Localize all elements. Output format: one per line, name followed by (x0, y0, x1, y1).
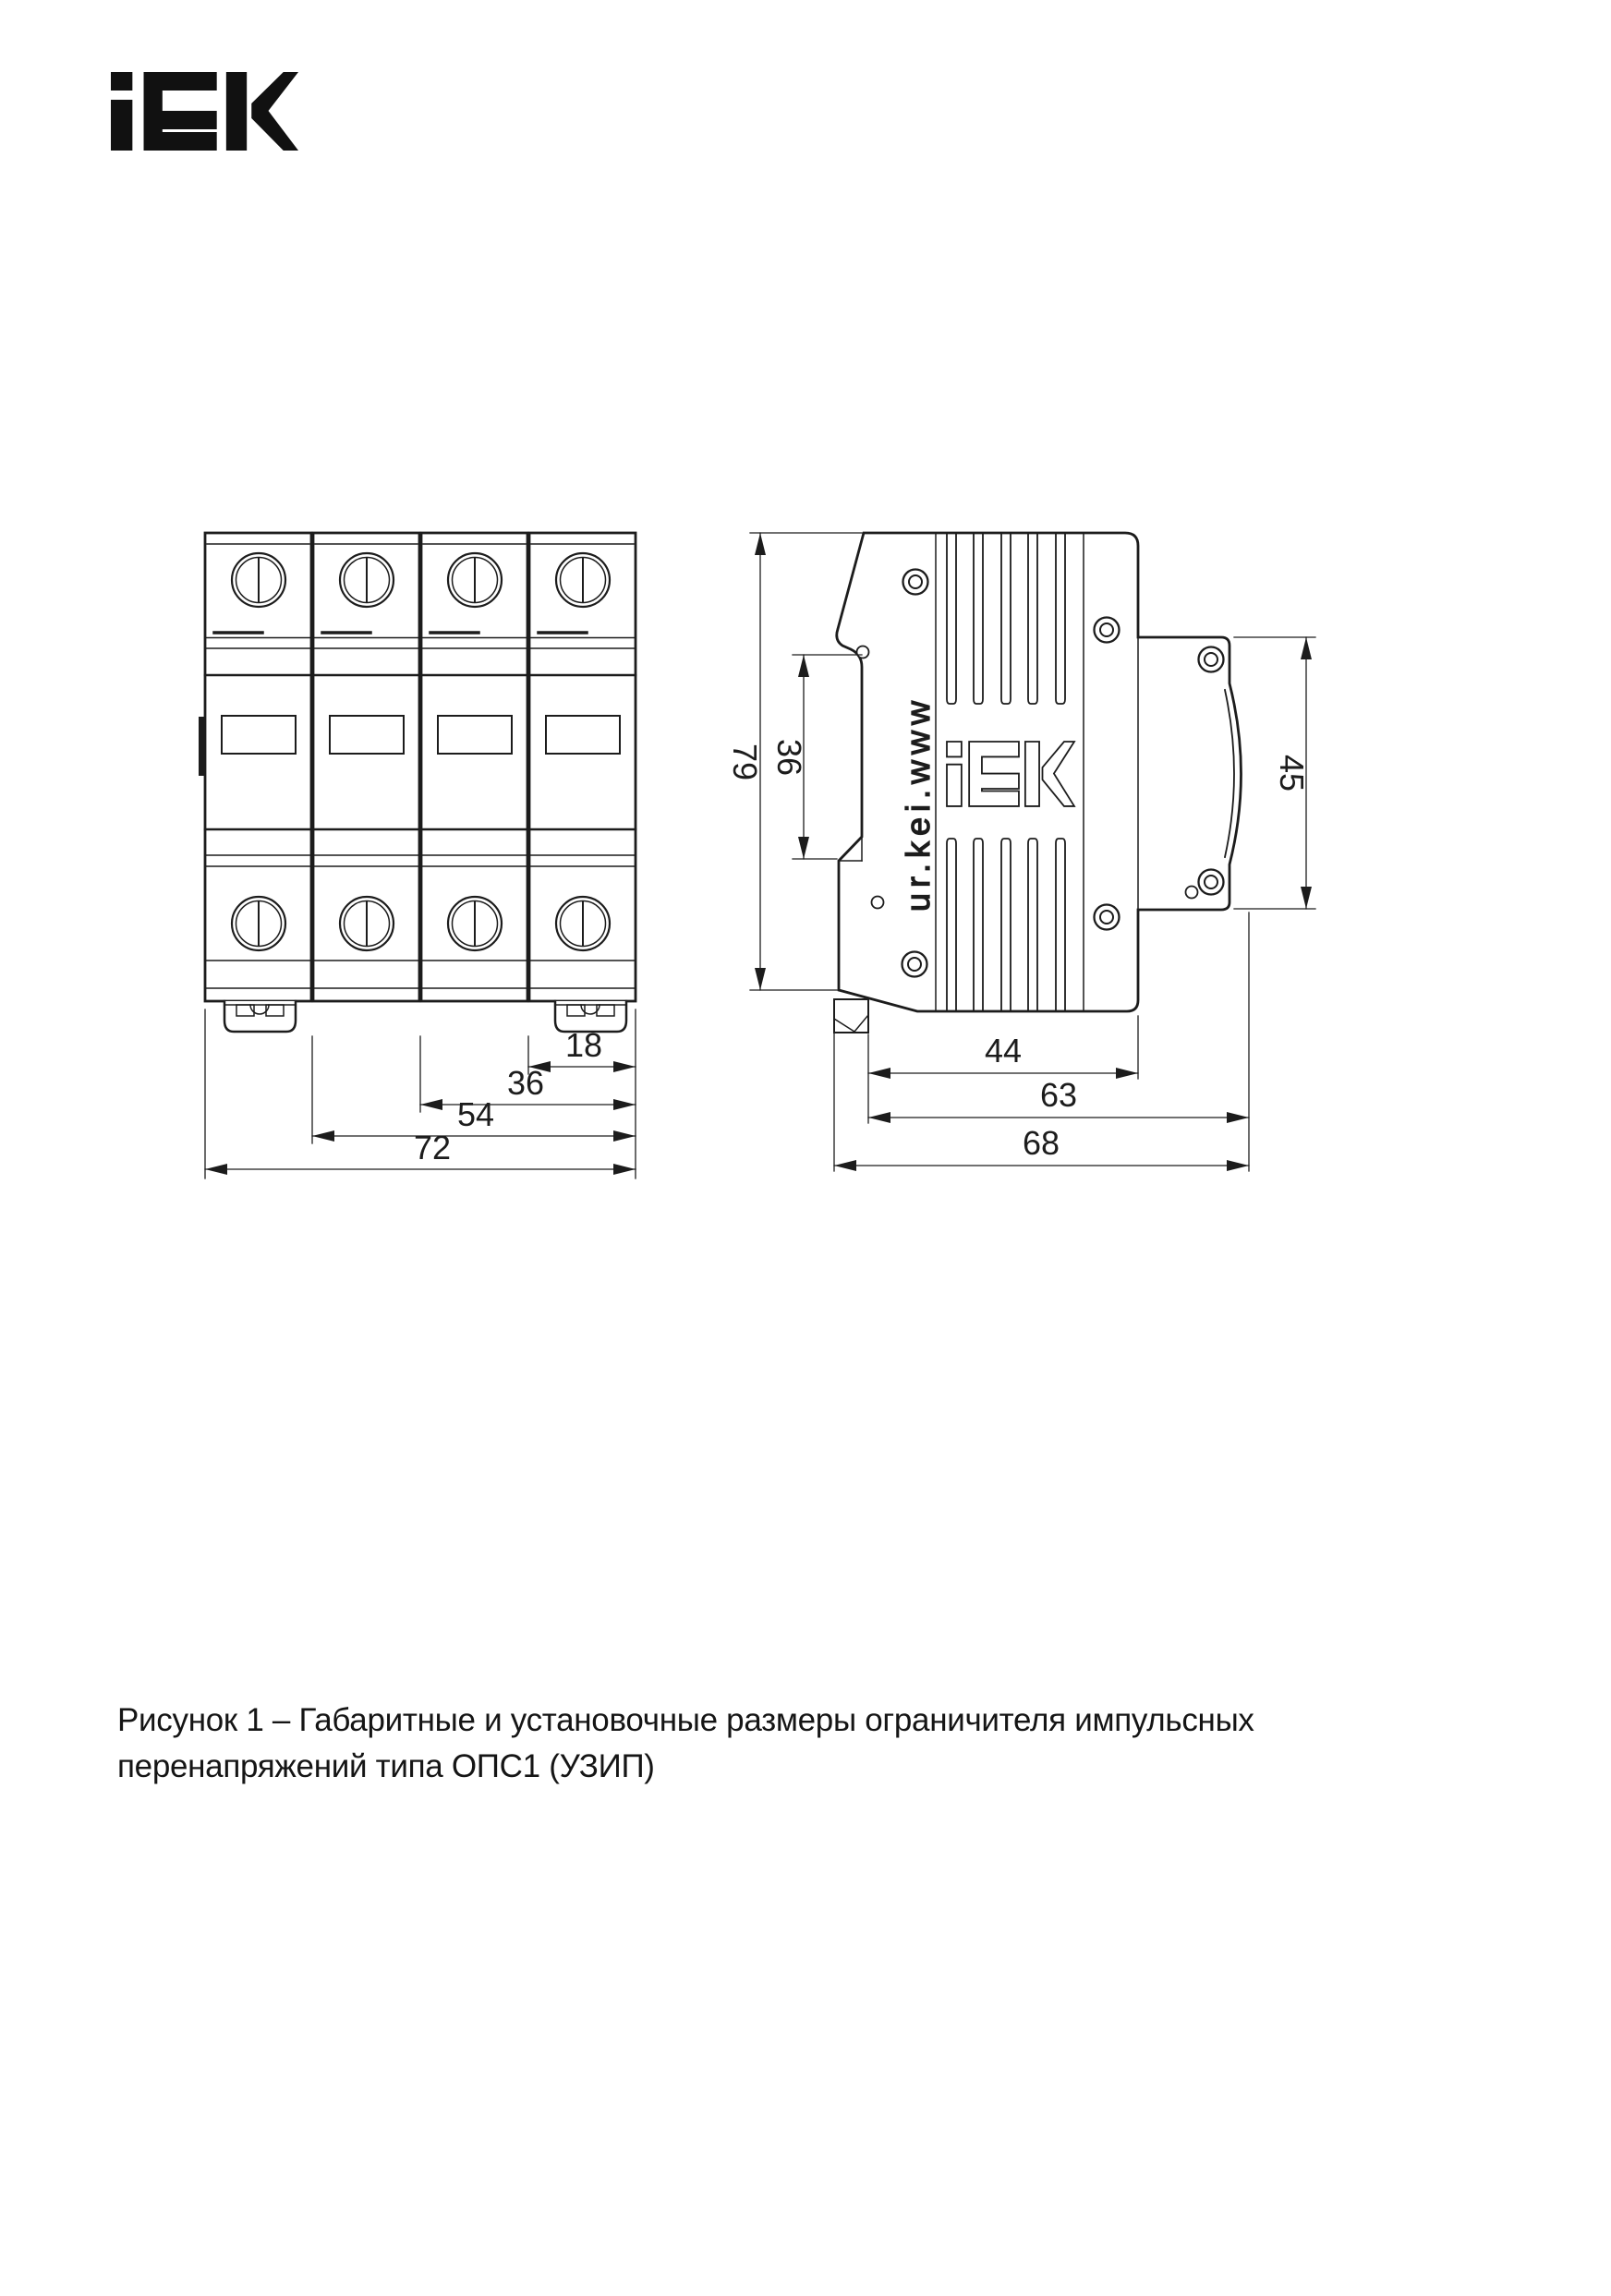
caption-line-1: Рисунок 1 – Габаритные и установочные ра… (117, 1698, 1300, 1744)
dim-label-44: 44 (985, 1032, 1022, 1069)
front-view-dimensions: 18 36 54 72 (205, 1009, 636, 1178)
pin-hole (857, 647, 869, 659)
technical-drawing: 18 36 54 72 (0, 0, 1611, 2296)
dim-label-63: 63 (1040, 1076, 1077, 1114)
dim-label-36-side: 36 (770, 739, 808, 776)
module (205, 533, 311, 1001)
pin-hole (1186, 887, 1198, 899)
iek-logo (111, 72, 298, 151)
dim-label-18: 18 (565, 1026, 602, 1064)
figure-caption: Рисунок 1 – Габаритные и установочные ра… (117, 1698, 1300, 1790)
dim-label-79: 79 (726, 743, 764, 780)
page-root: 18 36 54 72 (0, 0, 1611, 2296)
side-view-drawing: ur.kei.www 79 36 45 (726, 533, 1315, 1171)
dim-label-68: 68 (1023, 1124, 1060, 1162)
caption-line-2: перенапряжений типа ОПС1 (УЗИП) (117, 1744, 1300, 1790)
screw-icon (1199, 647, 1224, 672)
url-engraving-text: ur.kei.www (899, 695, 937, 912)
module (313, 533, 419, 1001)
dim-label-36: 36 (507, 1064, 544, 1102)
module (421, 533, 527, 1001)
screw-icon (1095, 618, 1120, 643)
dim-label-72: 72 (414, 1129, 451, 1166)
front-view-drawing: 18 36 54 72 (199, 533, 636, 1178)
screw-icon (1199, 870, 1224, 895)
dim-label-45: 45 (1273, 755, 1311, 792)
pin-hole (872, 897, 884, 909)
screw-icon (1095, 905, 1120, 930)
dim-label-54: 54 (457, 1095, 494, 1133)
screw-icon (903, 570, 928, 595)
module (529, 533, 636, 1001)
screw-icon (902, 952, 927, 977)
din-tab (224, 1001, 296, 1032)
